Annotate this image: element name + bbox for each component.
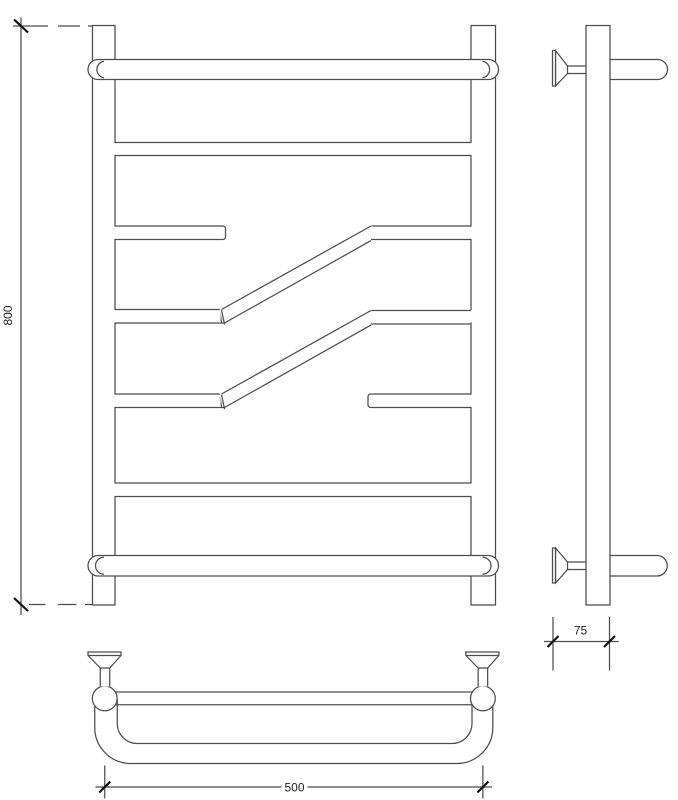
svg-text:500: 500 <box>284 780 304 794</box>
svg-text:800: 800 <box>1 305 15 325</box>
svg-text:75: 75 <box>574 623 588 637</box>
